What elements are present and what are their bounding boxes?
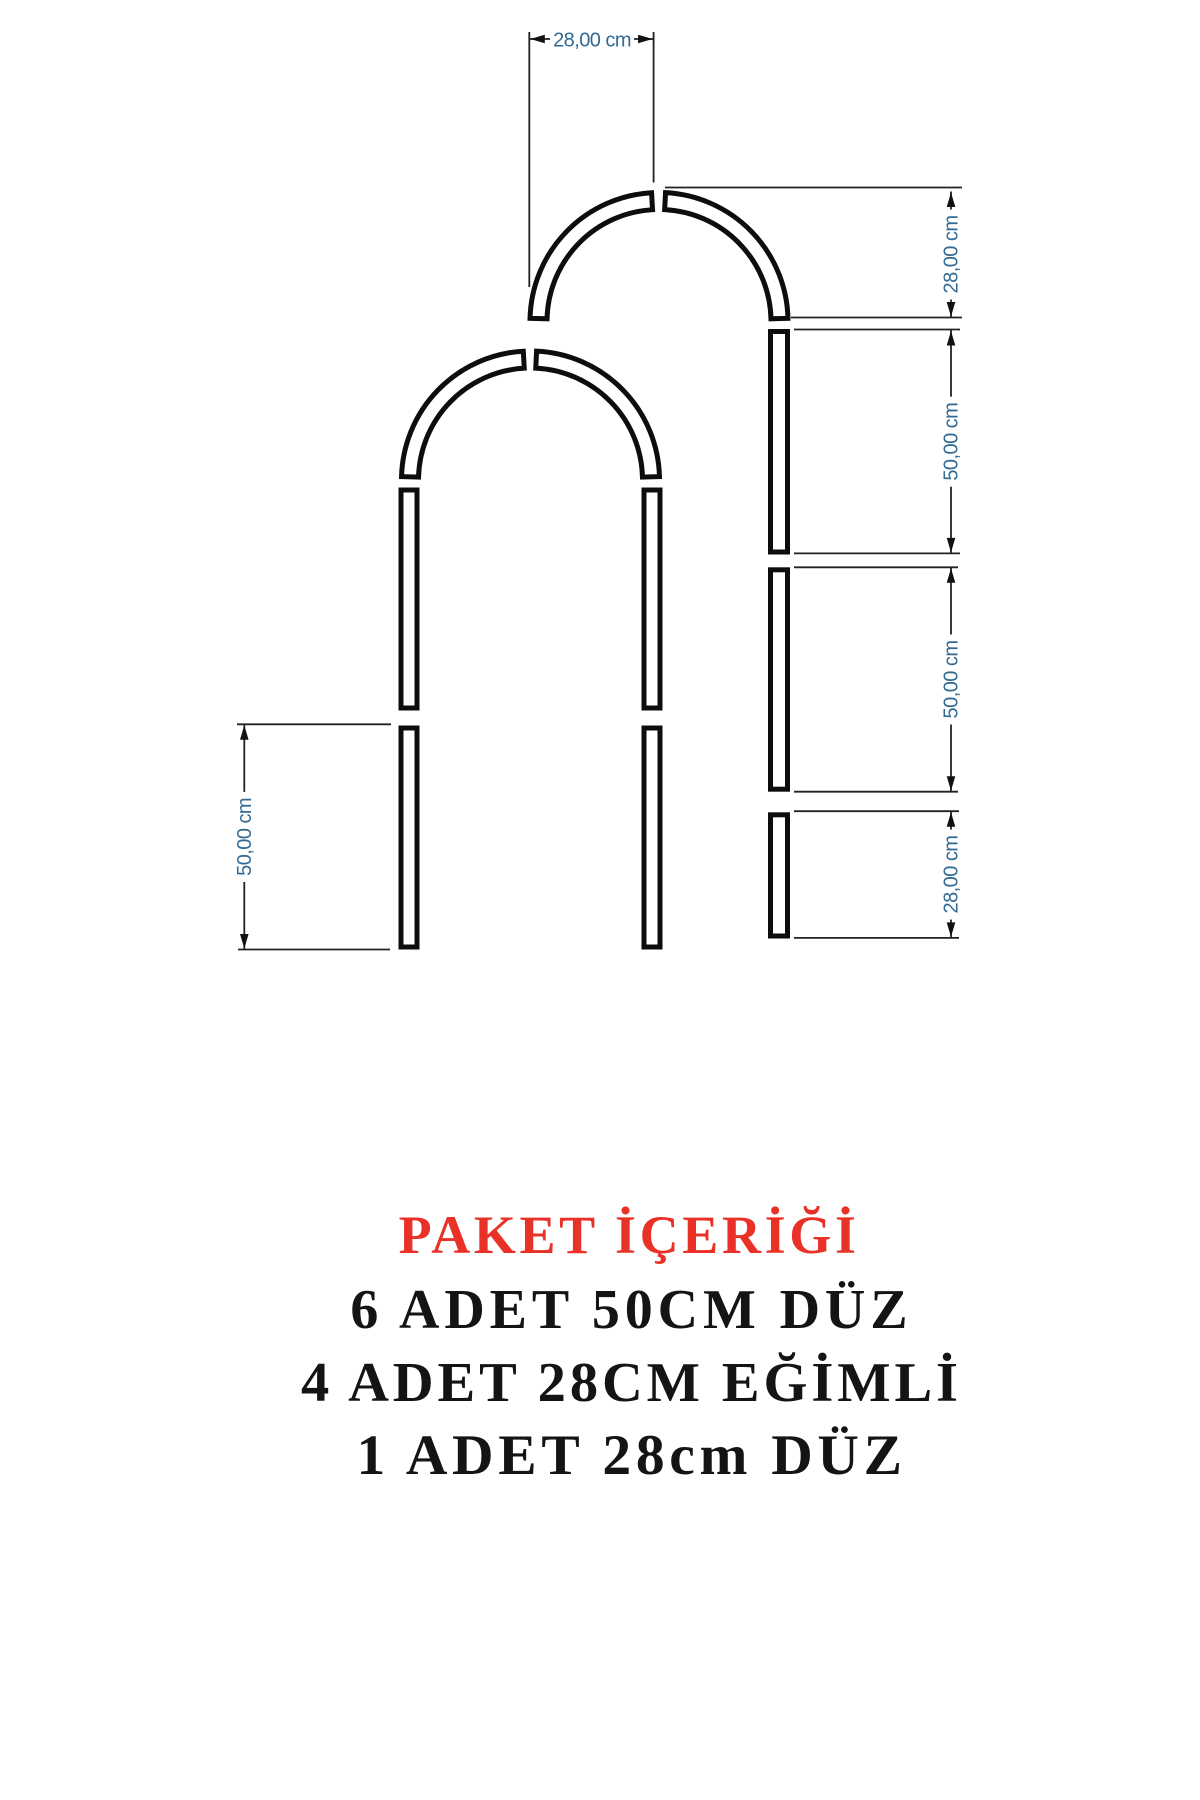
svg-text:4 ADET 28CM EĞİMLİ: 4 ADET 28CM EĞİMLİ <box>301 1351 962 1414</box>
svg-text:1 ADET 28cm DÜZ: 1 ADET 28cm DÜZ <box>356 1424 906 1487</box>
svg-text:28,00 cm: 28,00 cm <box>941 216 963 294</box>
svg-text:6 ADET 50CM DÜZ: 6 ADET 50CM DÜZ <box>350 1279 912 1341</box>
svg-text:50,00 cm: 50,00 cm <box>234 798 256 876</box>
svg-text:28,00 cm: 28,00 cm <box>941 836 963 914</box>
svg-text:PAKET İÇERİĞİ: PAKET İÇERİĞİ <box>399 1205 860 1265</box>
svg-text:50,00 cm: 50,00 cm <box>941 403 963 481</box>
svg-text:50,00 cm: 50,00 cm <box>941 641 963 719</box>
svg-text:28,00 cm: 28,00 cm <box>553 29 631 51</box>
